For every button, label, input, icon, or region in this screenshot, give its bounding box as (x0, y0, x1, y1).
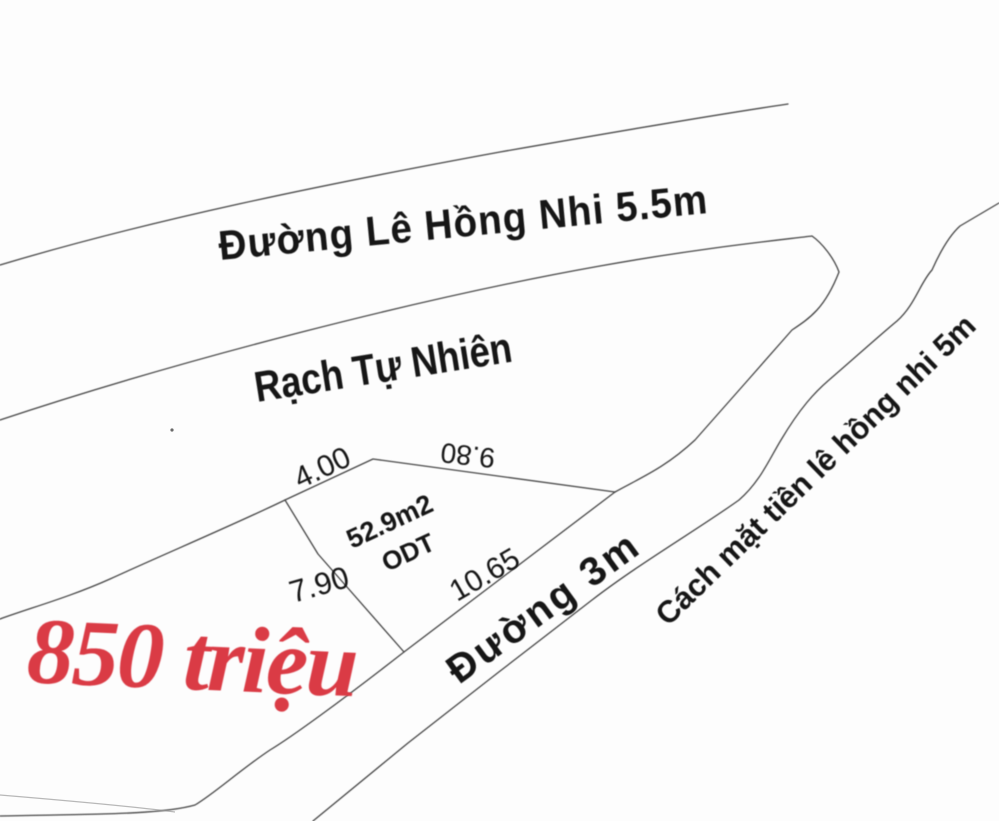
svg-text:9.80: 9.80 (439, 437, 497, 474)
svg-text:850 triệu: 850 triệu (25, 599, 359, 717)
